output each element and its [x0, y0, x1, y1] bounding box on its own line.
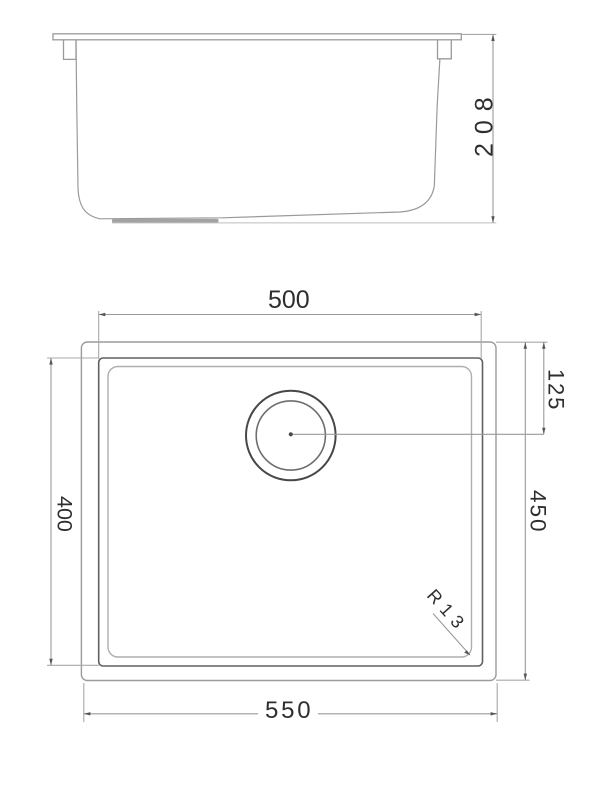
svg-text:550: 550	[265, 697, 313, 724]
svg-text:208: 208	[471, 88, 499, 157]
svg-text:450: 450	[526, 490, 551, 534]
svg-text:125: 125	[544, 369, 569, 411]
svg-text:500: 500	[268, 286, 310, 314]
svg-text:400: 400	[53, 496, 77, 532]
